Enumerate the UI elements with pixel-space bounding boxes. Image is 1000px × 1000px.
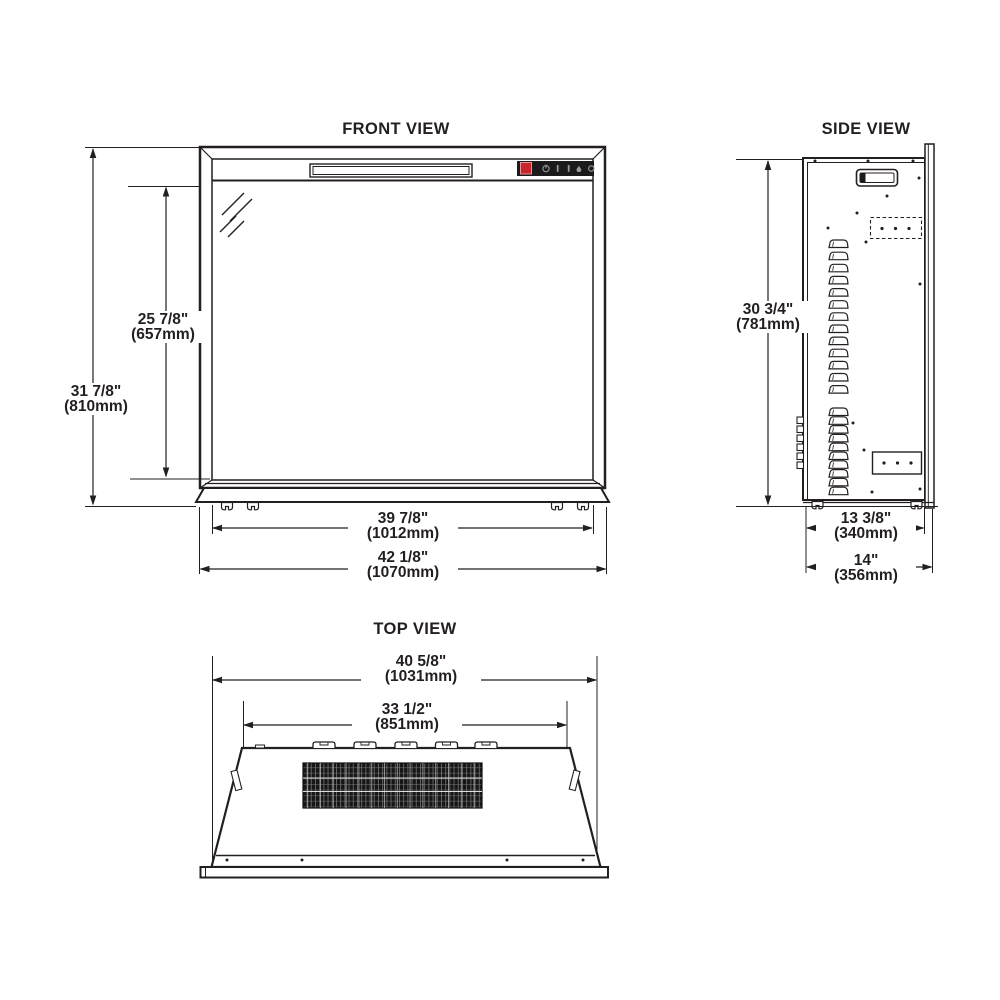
dim-mm: (657mm) [131,327,195,342]
dim-inches: 13 3/8" [841,511,891,526]
front-outer-frame [200,147,605,488]
front-overall-width-dim: 42 1/8" (1070mm) [348,549,458,581]
side-overall-depth-dim: 14" (356mm) [816,552,916,584]
control-panel [517,161,594,176]
dim-mm: (356mm) [834,568,898,583]
dim-inches: 40 5/8" [396,654,446,669]
side-body-depth-dim: 13 3/8" (340mm) [816,510,916,542]
front-flange-bar [201,867,609,878]
side-height-dim: 30 3/4" (781mm) [721,301,815,333]
fireplace-dimension-diagram: FRONT VIEW SIDE VIEW TOP VIEW 31 7/8" (8… [0,0,1000,1000]
front-base [196,488,609,502]
front-view-title: FRONT VIEW [306,120,486,139]
front-glass-height-dim: 25 7/8" (657mm) [118,311,208,343]
line-art [0,0,1000,1000]
dim-inches: 25 7/8" [138,312,188,327]
dim-inches: 30 3/4" [743,302,793,317]
top-vent-slot [310,164,472,177]
front-glass-width-dim: 39 7/8" (1012mm) [348,510,458,542]
side-view-title: SIDE VIEW [776,120,956,139]
dim-inches: 39 7/8" [378,511,428,526]
wiring-knockout-dashed [871,218,922,239]
heater-grille [303,763,482,808]
top-view-title: TOP VIEW [325,620,505,639]
dim-mm: (1070mm) [367,565,439,580]
dim-inches: 33 1/2" [382,702,432,717]
dim-inches: 14" [854,553,879,568]
front-flange-edge [925,144,934,508]
front-overall-height-dim: 31 7/8" (810mm) [51,383,141,415]
wiring-knockout-solid [873,452,922,474]
dim-mm: (1031mm) [385,669,457,684]
dim-mm: (810mm) [64,399,128,414]
control-icon-2[interactable] [557,165,559,172]
dim-mm: (1012mm) [367,526,439,541]
dim-mm: (851mm) [375,717,439,732]
control-icon-3[interactable] [568,165,570,172]
front-view-drawing [196,147,609,510]
top-body-width-dim: 33 1/2" (851mm) [352,701,462,733]
handle [857,170,898,187]
side-view-drawing [797,144,934,509]
dim-inches: 42 1/8" [378,550,428,565]
power-button[interactable] [521,163,532,175]
dim-inches: 31 7/8" [71,384,121,399]
front-feet [222,503,589,510]
top-flange-width-dim: 40 5/8" (1031mm) [361,653,481,685]
dim-mm: (340mm) [834,526,898,541]
top-view-drawing [201,656,609,878]
dim-mm: (781mm) [736,317,800,332]
